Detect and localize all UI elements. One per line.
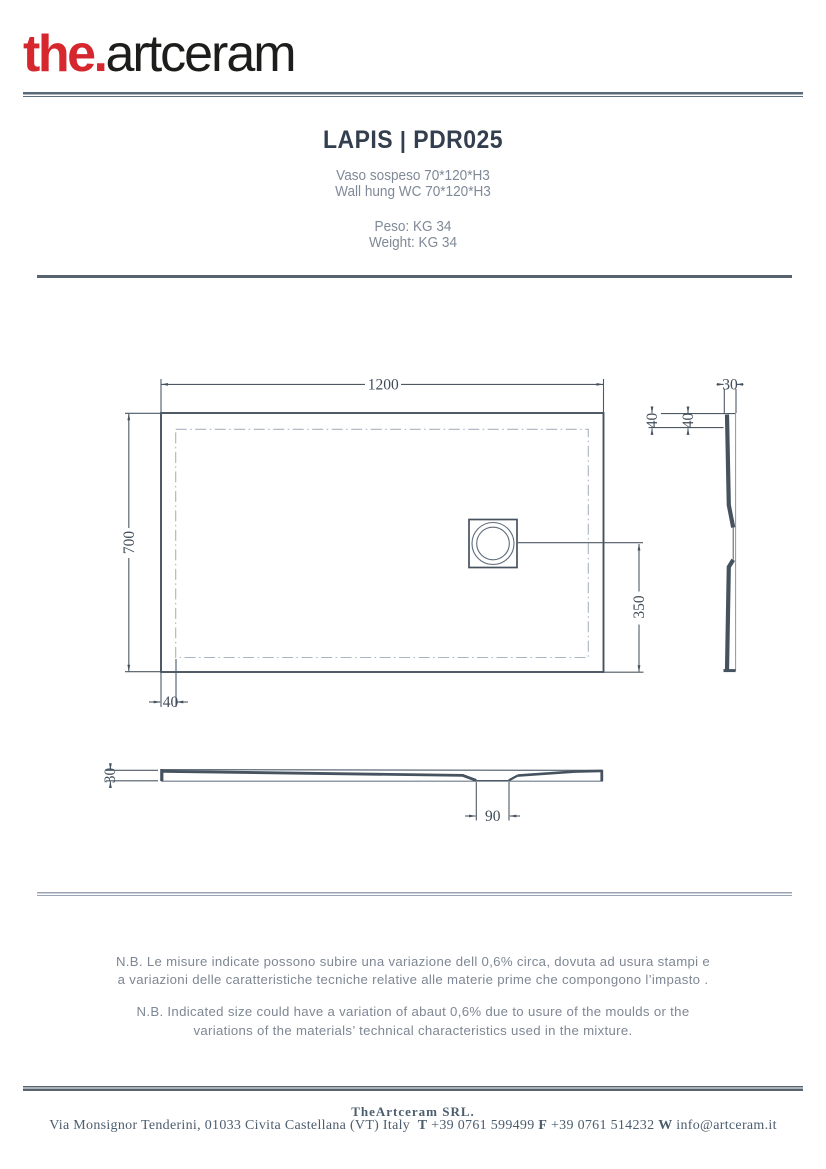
svg-text:40: 40: [163, 694, 179, 711]
svg-text:90: 90: [485, 808, 501, 825]
svg-text:40: 40: [680, 413, 697, 429]
svg-text:700: 700: [121, 531, 138, 555]
svg-text:30: 30: [102, 768, 119, 784]
svg-text:350: 350: [631, 595, 648, 619]
svg-text:40: 40: [644, 413, 661, 429]
svg-text:30: 30: [722, 377, 738, 394]
svg-text:1200: 1200: [368, 377, 399, 394]
